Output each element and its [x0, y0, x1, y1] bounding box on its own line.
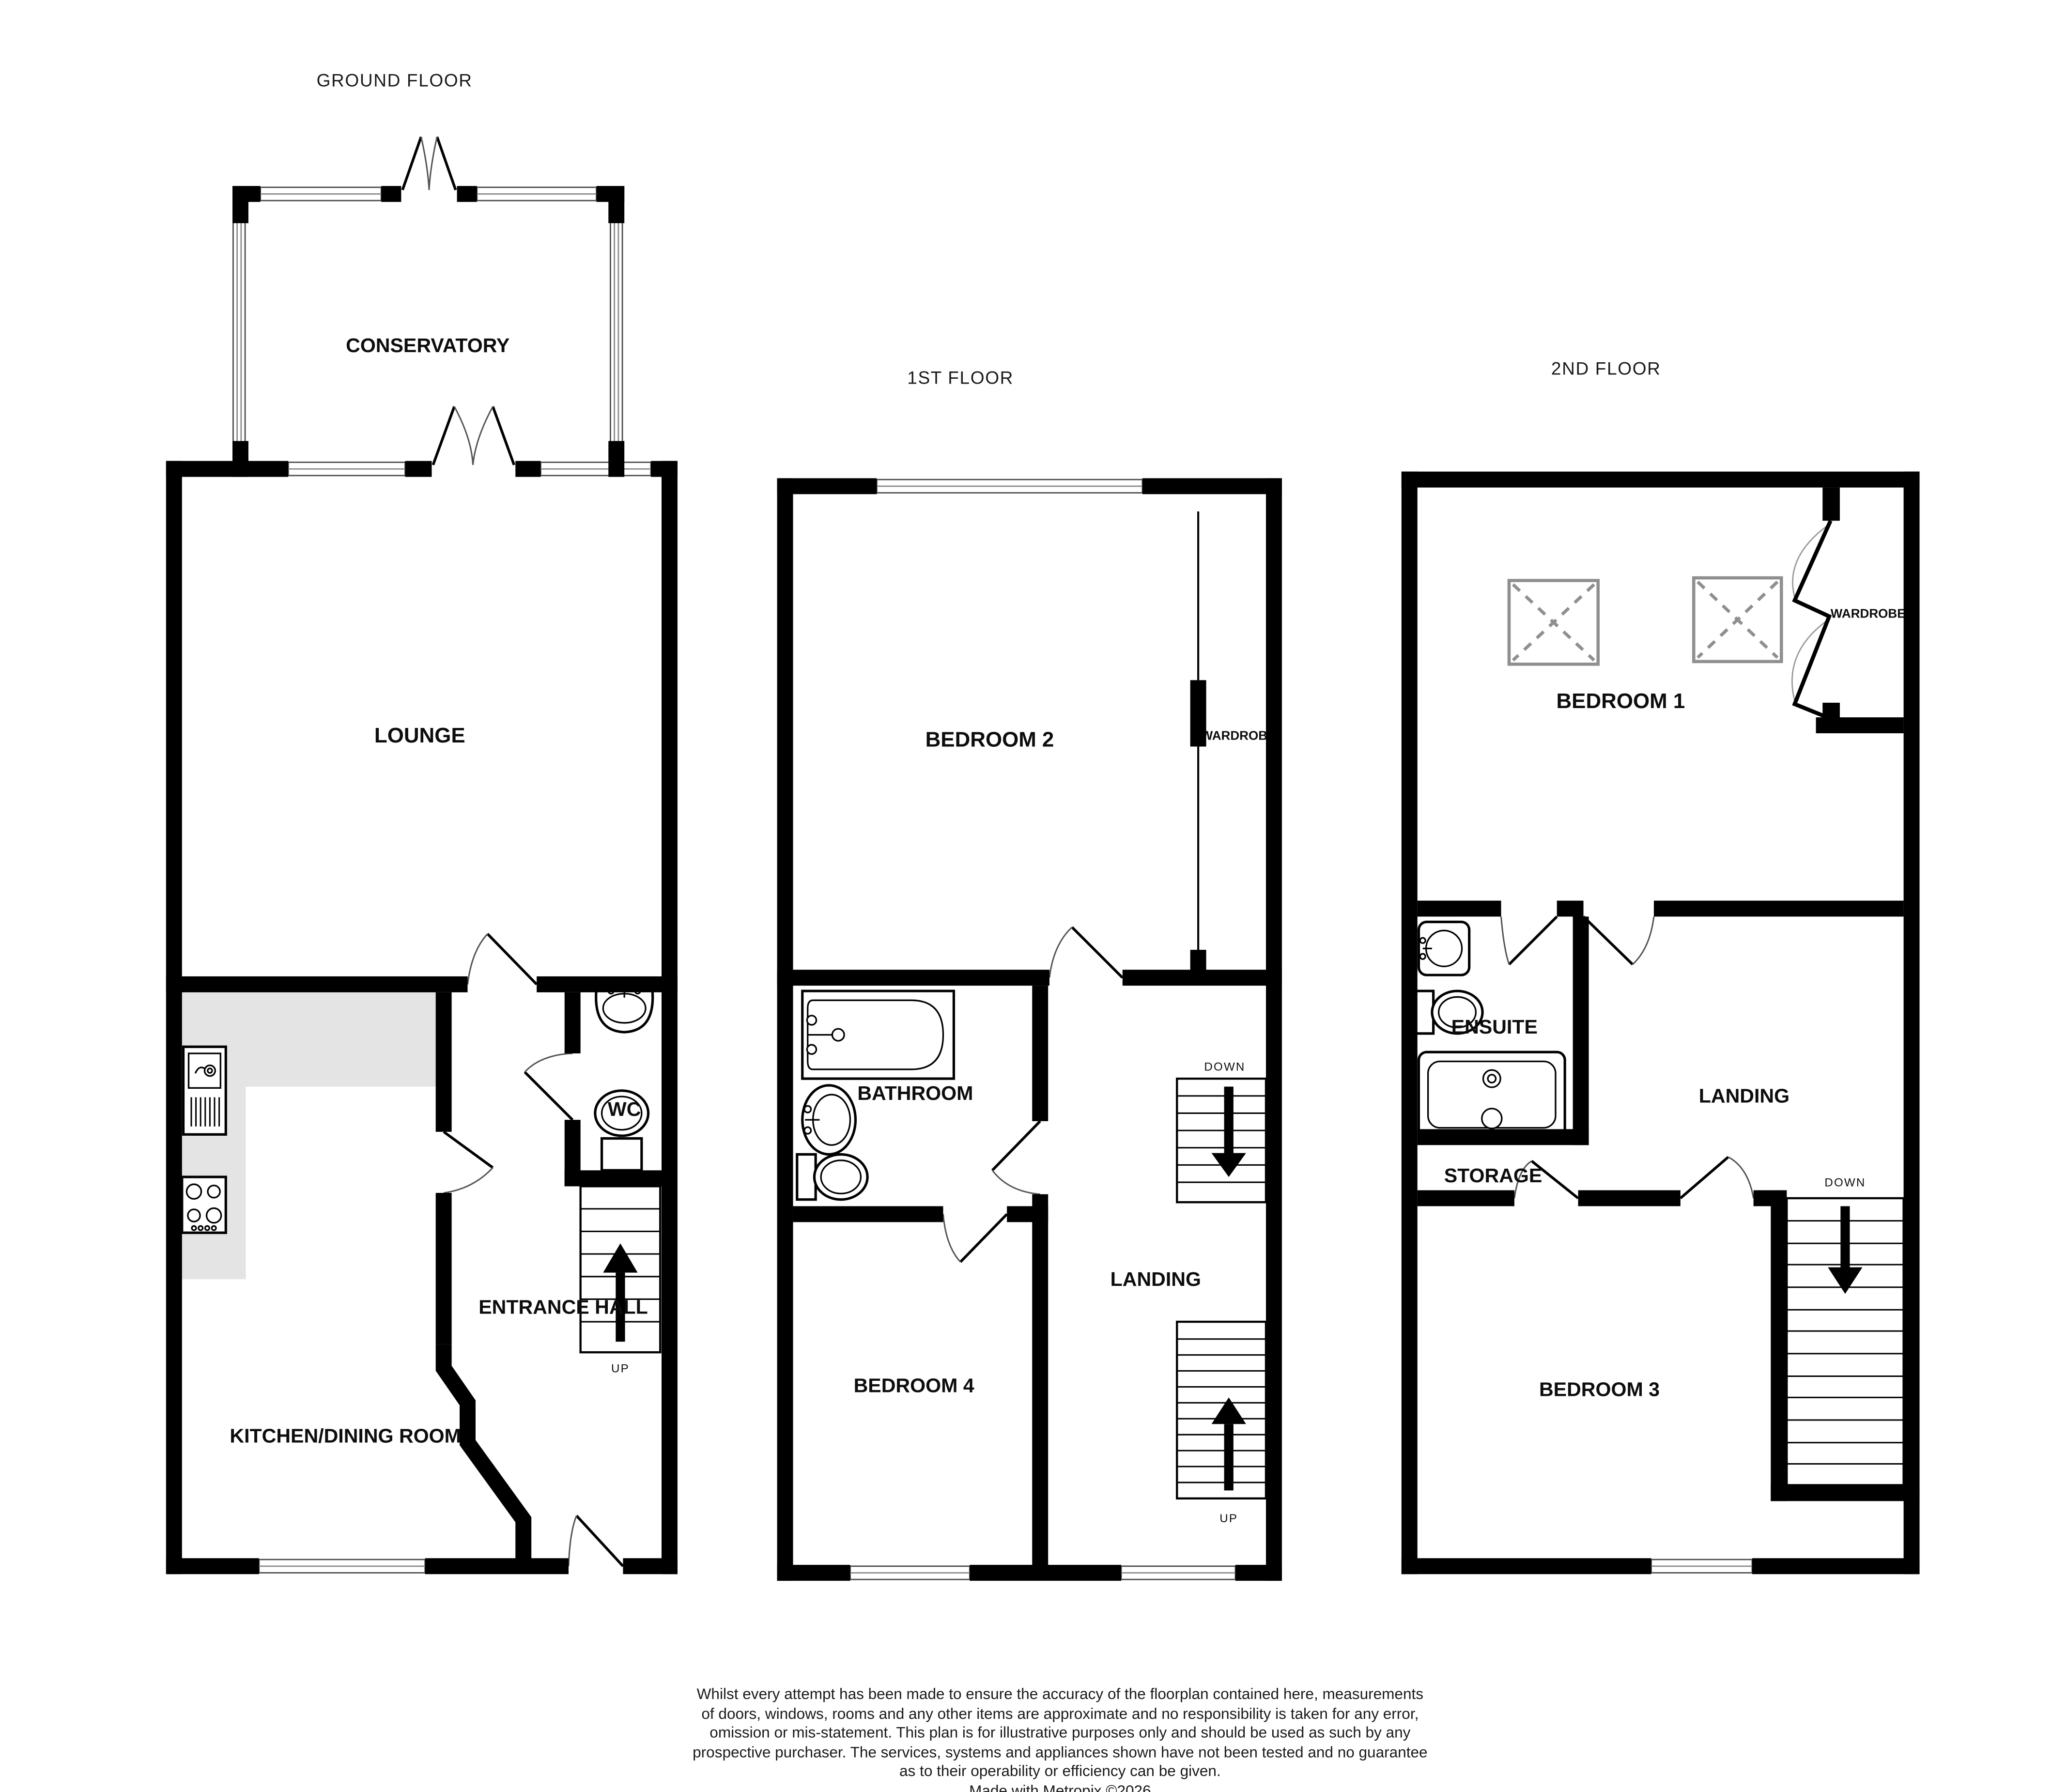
bedroom3-label: BEDROOM 3	[1539, 1378, 1660, 1401]
first-floor-right-wall	[1266, 478, 1282, 1581]
first-stairs-up	[1177, 1322, 1266, 1498]
second-floor-right-wall	[1904, 472, 1920, 1575]
first-stairs-down	[1177, 1079, 1266, 1202]
disclaimer-line-1: Whilst every attempt has been made to en…	[697, 1685, 1423, 1702]
bedroom4-window-icon	[850, 1566, 970, 1579]
conservatory-window-top-left-icon	[261, 187, 382, 201]
bedroom1-wardrobe-doors	[1792, 521, 1830, 719]
first-landing-label: LANDING	[1111, 1268, 1201, 1290]
first-wardrobe-door-block	[1190, 680, 1206, 746]
first-stairs-up-label: UP	[1219, 1512, 1238, 1525]
bedroom2-label: BEDROOM 2	[926, 727, 1054, 751]
floorplan-page: GROUND FLOOR 1ST FLOOR 2ND FLOOR CONSERV…	[0, 0, 2067, 1792]
wc-door	[524, 1053, 572, 1120]
bedroom2-door	[1049, 927, 1123, 977]
disclaimer-line-2: of doors, windows, rooms and any other i…	[701, 1705, 1419, 1722]
kitchen-window-icon	[259, 1560, 425, 1573]
bedroom2-window-icon	[877, 479, 1142, 493]
conservatory-label: CONSERVATORY	[346, 334, 509, 356]
floorplan-canvas: GROUND FLOOR 1ST FLOOR 2ND FLOOR CONSERV…	[0, 0, 2067, 1792]
lounge-window-right-icon	[540, 462, 651, 475]
ground-floor-title: GROUND FLOOR	[317, 70, 473, 90]
kitchen-sink-icon	[184, 1047, 226, 1134]
first-wardrobe-label: WARDROBE	[1201, 728, 1276, 743]
landing1-window-icon	[1121, 1566, 1235, 1579]
second-stairs-down-label: DOWN	[1824, 1176, 1866, 1189]
ensuite-label: ENSUITE	[1451, 1016, 1538, 1038]
second-wardrobe-label: WARDROBE	[1831, 606, 1906, 620]
lounge-hall-door	[468, 934, 537, 984]
conservatory-window-top-right-icon	[477, 187, 597, 201]
disclaimer: Whilst every attempt has been made to en…	[693, 1685, 1427, 1792]
first-stairs-down-label: DOWN	[1204, 1061, 1245, 1074]
entrance-hall-label: ENTRANCE HALL	[478, 1296, 648, 1318]
first-floor-title: 1ST FLOOR	[907, 368, 1014, 388]
conservatory-window-left-icon	[233, 222, 245, 442]
hob-icon	[182, 1177, 226, 1233]
front-door	[569, 1516, 623, 1566]
bedroom3-window-icon	[1651, 1560, 1752, 1573]
lounge-window-left-icon	[288, 462, 405, 475]
skylight-icon-left	[1509, 581, 1598, 664]
disclaimer-line-4: prospective purchaser. The services, sys…	[693, 1744, 1427, 1761]
bedroom3-door	[1681, 1157, 1754, 1198]
bedroom1-door	[1584, 917, 1654, 965]
storage-label: STORAGE	[1444, 1164, 1543, 1187]
second-stairs-down	[1787, 1198, 1903, 1485]
conservatory-exterior-double-door	[402, 137, 456, 190]
ground-stairs-up	[581, 1186, 661, 1352]
lounge-conservatory-double-door	[433, 406, 514, 465]
skylight-icon-right	[1694, 578, 1781, 662]
disclaimer-line-3: omission or mis-statement. This plan is …	[710, 1724, 1410, 1741]
bathroom-toilet-icon	[797, 1154, 867, 1199]
bathroom-sink-icon	[802, 1085, 856, 1155]
wc-label: WC	[608, 1098, 641, 1120]
metropix-credit: Made with Metropix ©2026	[969, 1782, 1151, 1792]
second-floor-title: 2ND FLOOR	[1551, 358, 1661, 378]
kitchen-label: KITCHEN/DINING ROOM	[230, 1425, 461, 1447]
first-floor-plan	[777, 478, 1282, 1581]
second-landing-label: LANDING	[1699, 1085, 1789, 1107]
ensuite-door	[1501, 917, 1557, 965]
bedroom1-label: BEDROOM 1	[1557, 689, 1685, 713]
bathroom-door	[992, 1121, 1040, 1194]
bath-icon	[802, 991, 954, 1079]
labels-layer: GROUND FLOOR 1ST FLOOR 2ND FLOOR CONSERV…	[230, 70, 1905, 1525]
kitchen-hall-door	[444, 1132, 493, 1193]
bedroom4-door	[943, 1214, 1007, 1262]
ensuite-sink-icon	[1419, 922, 1469, 975]
disclaimer-line-5: as to their operability or efficiency ca…	[899, 1762, 1221, 1779]
lounge-label: LOUNGE	[374, 724, 465, 747]
shower-icon	[1419, 1052, 1565, 1137]
bedroom4-label: BEDROOM 4	[854, 1374, 974, 1396]
kitchen-counter	[182, 992, 436, 1279]
ground-stairs-up-label: UP	[611, 1362, 630, 1375]
conservatory-window-right-icon	[610, 222, 622, 442]
bathroom-label: BATHROOM	[857, 1082, 973, 1104]
